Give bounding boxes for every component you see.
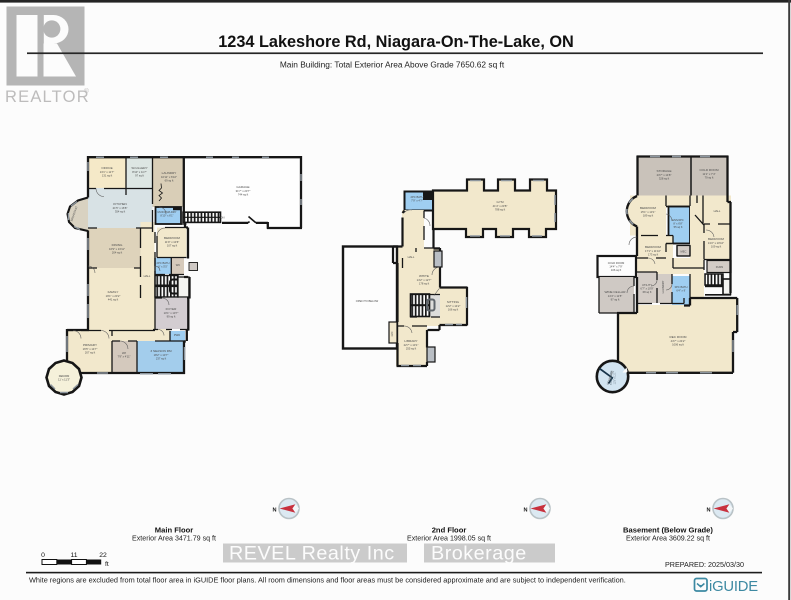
svg-text:11'5" x 11'1": 11'5" x 11'1" [614, 371, 617, 384]
svg-text:MEC: MEC [681, 250, 687, 254]
svg-text:204 sq ft: 204 sq ft [112, 251, 123, 255]
svg-text:19'1" x 23'2": 19'1" x 23'2" [106, 294, 121, 298]
svg-text:FAMILY: FAMILY [108, 290, 119, 294]
svg-text:N: N [706, 508, 710, 514]
svg-text:10'1" x 10'7": 10'1" x 10'7" [164, 311, 179, 315]
svg-text:207 sq ft: 207 sq ft [85, 351, 96, 355]
svg-text:22: 22 [99, 552, 107, 559]
svg-text:441 sq ft: 441 sq ft [108, 298, 119, 302]
svg-text:REALTOR: REALTOR [5, 88, 90, 106]
svg-text:N: N [523, 508, 527, 514]
svg-text:SCULLERY: SCULLERY [131, 166, 147, 170]
svg-text:BEDROOM: BEDROOM [708, 237, 724, 241]
svg-text:131 sq ft: 131 sq ft [102, 174, 113, 178]
svg-text:173 sq ft: 173 sq ft [648, 253, 659, 257]
svg-text:1234 Lakeshore Rd, Niagara-On-: 1234 Lakeshore Rd, Niagara-On-The-Lake, … [218, 33, 574, 51]
svg-text:COLD ROOM: COLD ROOM [608, 261, 625, 265]
svg-text:8'10" x 6'1": 8'10" x 6'1" [160, 214, 173, 218]
svg-text:COLD ROOM: COLD ROOM [699, 168, 719, 172]
svg-text:FOYER: FOYER [166, 307, 177, 311]
svg-text:788 sq ft: 788 sq ft [495, 208, 506, 212]
svg-text:44'7" x 24'2": 44'7" x 24'2" [671, 339, 686, 343]
svg-text:STORAGE: STORAGE [656, 169, 671, 173]
svg-text:WC: WC [176, 263, 181, 267]
svg-text:GYM: GYM [496, 200, 503, 204]
svg-text:255 sq ft: 255 sq ft [406, 347, 417, 351]
svg-text:8'10" x 11'7": 8'10" x 11'7" [132, 170, 147, 174]
svg-text:Main Building: Total Exterior: Main Building: Total Exterior Area Above… [280, 60, 505, 70]
svg-text:Basement (Below Grade): Basement (Below Grade) [623, 526, 713, 535]
svg-text:HALL: HALL [408, 255, 415, 259]
svg-text:DINING: DINING [112, 243, 123, 247]
svg-text:Brokerage: Brokerage [431, 543, 527, 565]
svg-text:ft: ft [105, 561, 109, 568]
svg-text:HALL: HALL [714, 209, 721, 213]
svg-text:21'5" x 16'8": 21'5" x 16'8" [113, 206, 128, 210]
svg-text:11: 11 [70, 552, 77, 559]
svg-text:79 sq ft: 79 sq ft [705, 176, 714, 180]
svg-text:WINE CELLAR: WINE CELLAR [605, 290, 627, 294]
svg-text:LAUNDRY: LAUNDRY [661, 280, 665, 293]
svg-text:354 sq ft: 354 sq ft [115, 210, 126, 214]
svg-text:3 SEASON RM: 3 SEASON RM [150, 349, 172, 353]
svg-text:328 sq ft: 328 sq ft [659, 177, 670, 181]
svg-text:BEDROOM: BEDROOM [164, 236, 180, 240]
svg-text:C/O: C/O [390, 332, 394, 337]
svg-text:LAUNDRY: LAUNDRY [162, 171, 177, 175]
svg-text:MUD RM/LDRY: MUD RM/LDRY [158, 210, 177, 214]
svg-text:68 sq ft: 68 sq ft [643, 290, 652, 294]
svg-text:107 sq ft: 107 sq ft [167, 244, 178, 248]
svg-text:97 sq ft: 97 sq ft [135, 174, 144, 178]
svg-text:11'1" x 7'4": 11'1" x 7'4" [702, 172, 715, 176]
svg-text:W/I: W/I [122, 351, 126, 355]
svg-text:178 sq ft: 178 sq ft [419, 282, 430, 286]
svg-text:744 sq ft: 744 sq ft [238, 193, 249, 197]
svg-text:WHITE: WHITE [419, 274, 429, 278]
svg-text:iGUIDE: iGUIDE [709, 579, 758, 595]
svg-text:166 sq ft: 166 sq ft [448, 308, 459, 312]
svg-text:REC ROOM: REC ROOM [669, 335, 686, 339]
svg-text:REVEL Realty Inc: REVEL Realty Inc [229, 543, 395, 565]
svg-text:17'1" x 11'10": 17'1" x 11'10" [645, 249, 661, 253]
svg-text:7'9" x 4'11": 7'9" x 4'11" [117, 355, 130, 359]
svg-text:13'2" x 10'10": 13'2" x 10'10" [708, 241, 724, 245]
svg-text:15'1" x 13'1": 15'1" x 13'1" [641, 210, 656, 214]
svg-text:FURN: FURN [716, 265, 724, 269]
svg-text:PREPARED: 2025/03/30: PREPARED: 2025/03/30 [665, 560, 744, 569]
svg-text:3PC BATH: 3PC BATH [675, 285, 688, 289]
svg-text:DN: DN [221, 216, 225, 220]
svg-text:6'7" x 10'9": 6'7" x 10'9" [640, 287, 653, 291]
svg-text:White regions are excluded fro: White regions are excluded from total fl… [29, 576, 626, 585]
svg-text:PWD: PWD [174, 333, 180, 337]
svg-text:10'11" x 6'10": 10'11" x 6'10" [161, 175, 177, 179]
svg-text:OFFICE: OFFICE [101, 166, 112, 170]
svg-text:106 sq ft: 106 sq ft [611, 268, 622, 272]
svg-text:Exterior Area 3609.22 sq ft: Exterior Area 3609.22 sq ft [626, 535, 710, 543]
svg-text:OPEN TO BELOW: OPEN TO BELOW [356, 299, 379, 303]
svg-text:14'4" x 7'9": 14'4" x 7'9" [609, 265, 622, 269]
svg-text:7'9" x 4'7": 7'9" x 4'7" [411, 199, 423, 203]
svg-text:KITCHEN: KITCHEN [113, 202, 127, 206]
svg-text:1006 sq ft: 1006 sq ft [672, 343, 684, 347]
svg-text:23'7" x 14'8": 23'7" x 14'8" [657, 173, 672, 177]
svg-text:14'4" x 11'5": 14'4" x 11'5" [608, 294, 623, 298]
svg-text:41'4" x 23'8": 41'4" x 23'8" [493, 204, 508, 208]
svg-text:Exterior Area 3471.79 sq ft: Exterior Area 3471.79 sq ft [132, 535, 216, 543]
svg-text:99 sq ft: 99 sq ft [167, 315, 176, 319]
svg-text:BEDROOM: BEDROOM [645, 245, 661, 249]
svg-text:189 sq ft: 189 sq ft [643, 214, 654, 218]
svg-text:109 sq ft: 109 sq ft [711, 245, 722, 249]
svg-text:2PC BATH: 2PC BATH [411, 195, 424, 199]
svg-text:PRIMARY: PRIMARY [83, 343, 97, 347]
svg-text:SITTING: SITTING [447, 300, 460, 304]
svg-text:12'2" x 14'2": 12'2" x 14'2" [446, 304, 461, 308]
svg-text:22'7" x 13'1": 22'7" x 13'1" [404, 343, 419, 347]
svg-text:LIBRARY: LIBRARY [404, 339, 417, 343]
svg-text:237 sq ft: 237 sq ft [156, 357, 167, 361]
svg-text:0: 0 [41, 552, 45, 559]
svg-text:Main Floor: Main Floor [155, 526, 193, 535]
svg-text:6'4" x 9': 6'4" x 9' [676, 289, 686, 293]
svg-text:N: N [272, 508, 276, 514]
svg-text:16'9" x 13'11": 16'9" x 13'11" [109, 247, 125, 251]
svg-text:13'1" x 11'7": 13'1" x 11'7" [100, 170, 115, 174]
svg-text:8' x 6'8": 8' x 6'8" [673, 222, 682, 226]
svg-text:16'5" x 14'7": 16'5" x 14'7" [83, 347, 98, 351]
svg-text:18'2" x 13'7": 18'2" x 13'7" [154, 353, 169, 357]
svg-text:55 sq ft: 55 sq ft [674, 225, 683, 229]
svg-text:11' x 11'3": 11' x 11'3" [58, 378, 70, 382]
svg-text:2PC BATH: 2PC BATH [157, 261, 170, 265]
svg-text:2nd Floor: 2nd Floor [432, 526, 467, 535]
svg-text:BEDROOM: BEDROOM [640, 206, 656, 210]
svg-text:DEN/RM: DEN/RM [59, 374, 70, 378]
svg-text:Exterior Area 1998.05 sq ft: Exterior Area 1998.05 sq ft [407, 535, 491, 543]
svg-text:UTILITY: UTILITY [642, 283, 652, 287]
svg-text:11'9" x 10'6": 11'9" x 10'6" [165, 240, 180, 244]
svg-text:14'2" x 12'7": 14'2" x 12'7" [417, 278, 432, 282]
svg-text:ENS/4PC: ENS/4PC [672, 218, 684, 222]
svg-text:GARAGE: GARAGE [236, 185, 249, 189]
svg-text:69 sq ft: 69 sq ft [165, 179, 174, 183]
svg-text:6' x 5'5": 6' x 5'5" [158, 265, 167, 269]
svg-text:HALL: HALL [144, 274, 151, 278]
svg-text:97 sq ft: 97 sq ft [611, 298, 620, 302]
svg-text:31'7" x 23'7": 31'7" x 23'7" [236, 189, 251, 193]
svg-text:®: ® [84, 87, 89, 95]
